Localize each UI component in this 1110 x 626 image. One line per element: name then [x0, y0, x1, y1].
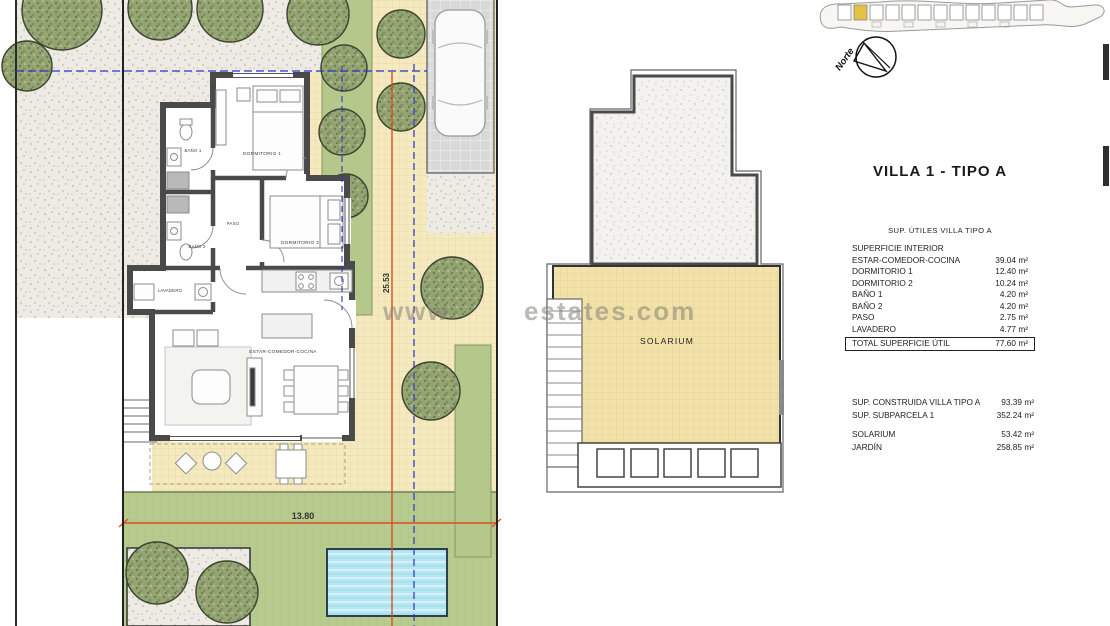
roof-area [592, 76, 757, 264]
table-row: BAÑO 1 4.20 m² [852, 289, 1028, 301]
plot [1014, 5, 1027, 20]
plot [870, 5, 883, 20]
solarium-stair [547, 299, 582, 467]
solarium-area [553, 266, 780, 452]
tree [377, 83, 425, 131]
room-label-lavadero: LAVADERO [158, 288, 183, 293]
room-label-estar: ESTAR-COMEDOR-COCINA [249, 349, 317, 355]
pergola-strip [578, 443, 781, 487]
gravel-area [427, 173, 494, 233]
total-row: TOTAL SUPERFICIE ÚTIL 77.60 m² [845, 337, 1035, 351]
shower [167, 196, 189, 213]
table-section-row: SUPERFICIE INTERIOR [852, 243, 1028, 255]
dining-table [294, 366, 338, 414]
plot [902, 5, 915, 20]
table-row: DORMITORIO 1 12.40 m² [852, 266, 1028, 278]
plot [950, 5, 963, 20]
room-label-dormitorio2: DORMITORIO 2 [281, 240, 319, 246]
shower [167, 172, 189, 189]
car [432, 10, 488, 136]
utiles-heading: SUP. ÚTILES VILLA TIPO A [845, 226, 1035, 235]
kitchen-island [262, 314, 312, 338]
table-row: JARDÍN 258.85 m² [852, 441, 1034, 454]
plot [838, 5, 851, 20]
room-label-bano2: BAÑO 2 [189, 244, 206, 249]
compass-circle [856, 37, 896, 77]
table-row: SUP. SUBPARCELA 1 352.24 m² [852, 409, 1034, 422]
planter [455, 345, 491, 557]
plot [982, 5, 995, 20]
villa-title: VILLA 1 - TIPO A [845, 163, 1035, 180]
gate-mark [779, 360, 784, 415]
table-row: PASO 2.75 m² [852, 312, 1028, 324]
dimension-width-label: 13.80 [292, 511, 315, 521]
plot [886, 5, 899, 20]
pool [327, 549, 447, 616]
room-label-dormitorio1: DORMITORIO 1 [243, 151, 281, 157]
parcel-plan: 13.80 25.53 BAÑO 1 DORMITORIO 1 PASO DOR… [2, 0, 501, 626]
armchair [173, 330, 194, 346]
tree [377, 10, 425, 58]
table-row: SUP. CONSTRUIDA VILLA TIPO A 93.39 m² [852, 396, 1034, 409]
summary-table: SUP. CONSTRUIDA VILLA TIPO A 93.39 m² SU… [852, 396, 1034, 454]
tree [196, 561, 258, 623]
north-label: Norte [833, 46, 857, 73]
plot [918, 5, 931, 20]
table-row: ESTAR-COMEDOR-COCINA 39.04 m² [852, 255, 1028, 267]
toilet [180, 124, 192, 140]
plot [998, 5, 1011, 20]
tree [421, 257, 483, 319]
coffee-table [192, 370, 230, 404]
tree [321, 45, 367, 91]
dimension-height-label: 25.53 [382, 272, 391, 293]
frame-mark [1103, 146, 1109, 186]
table-row: LAVADERO 4.77 m² [852, 324, 1028, 336]
table-row: DORMITORIO 2 10.24 m² [852, 278, 1028, 290]
north-arrow: Norte [833, 37, 896, 77]
neighbour-strip [2, 0, 123, 626]
solarium-plan: SOLARIUM [547, 70, 784, 492]
highlighted-plot [854, 5, 867, 20]
outdoor-table [203, 452, 221, 470]
armchair [197, 330, 218, 346]
solarium-label: SOLARIUM [640, 336, 694, 346]
tree [126, 542, 188, 604]
table-row: SOLARIUM 53.42 m² [852, 428, 1034, 441]
plan-sheet: 13.80 25.53 BAÑO 1 DORMITORIO 1 PASO DOR… [0, 0, 1110, 626]
room-label-paso: PASO [227, 221, 240, 226]
table-row: BAÑO 2 4.20 m² [852, 301, 1028, 313]
utiles-table: SUPERFICIE INTERIOR ESTAR-COMEDOR-COCINA… [852, 243, 1028, 351]
plot [1030, 5, 1043, 20]
room-label-bano1: BAÑO 1 [185, 148, 202, 153]
plot [934, 5, 947, 20]
frame-mark [1103, 44, 1109, 80]
tv [250, 368, 255, 406]
tree [402, 362, 460, 420]
driveway [427, 0, 494, 173]
site-locator-map [820, 0, 1104, 31]
tree [2, 41, 52, 91]
outdoor-dining-table [276, 450, 306, 478]
plot [966, 5, 979, 20]
